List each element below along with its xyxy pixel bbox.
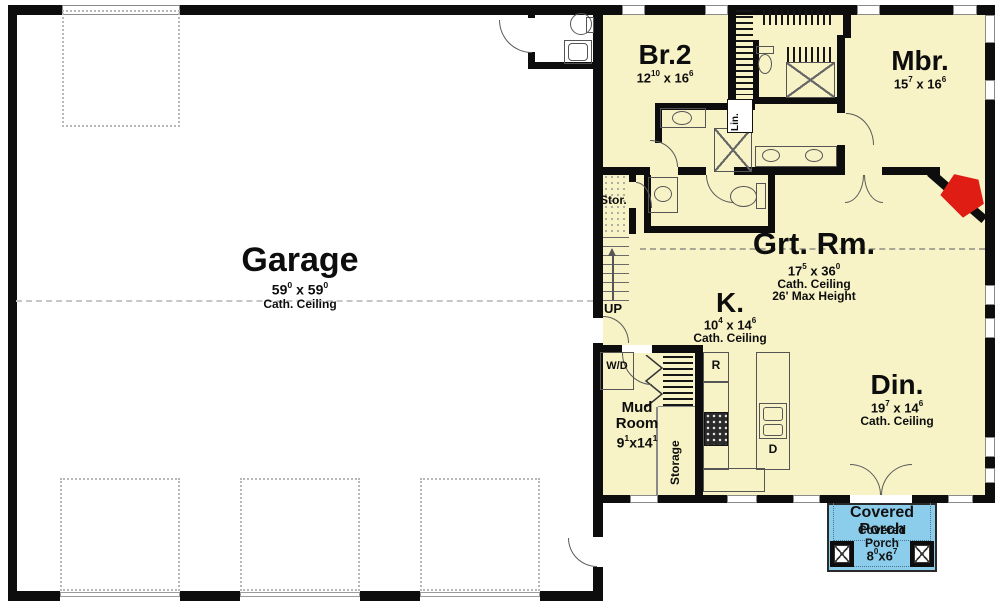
window [793,495,820,503]
dim-h-sup: 0 [836,262,840,271]
garage-door-track [240,478,360,591]
kitchen-counter [703,468,765,492]
shower [714,128,752,172]
window [985,437,995,457]
wall [728,8,736,103]
dim-h-sup: 6 [942,75,946,84]
closet-rod-hatch [763,10,833,25]
dim-w-sup: 4 [718,316,722,325]
cooktop [704,412,728,446]
wall [695,353,703,497]
dim-w: 8 [867,549,874,564]
window [985,318,995,338]
dim-w: 59 [272,281,288,297]
room-dimensions: 91x141 [597,435,677,450]
dim-sep: x [660,71,674,86]
stair-direction-arrow [612,254,614,300]
room-dimensions: 590 x 590 [180,282,420,297]
garage-label: Garage 590 x 590 Cath. Ceiling [180,243,420,311]
window [985,15,995,43]
closet-rod-hatch [663,356,693,406]
dishwasher-label: D [756,443,790,456]
wall [678,167,706,175]
dim-sep: x [629,434,637,450]
sink [654,186,672,202]
room-name: Grt. Rm. [724,228,904,261]
ceiling-dashed-outline [62,10,180,127]
door-arc [568,538,597,567]
porch-dimensions: 80x67 [827,549,937,563]
linen-closet-label: Lin. [731,101,742,131]
dim-w-sup: 5 [802,262,806,271]
dim-h-sup: 7 [893,547,897,556]
dim-h-sup: 6 [689,69,693,78]
garage-door-panel [420,592,540,597]
stair-arrow-head [608,248,616,256]
toilet-tank [756,183,766,209]
window [985,80,995,100]
door-arc [499,20,532,53]
room-name: Garage [180,243,420,279]
dim-sep: x [878,549,885,564]
room-dimensions: 157 x 166 [860,77,980,91]
mud-room-label: Mud Room 91x141 [597,400,677,450]
dim-h: 59 [308,281,324,297]
window [985,285,995,305]
dim-h: 36 [821,263,835,278]
window [948,495,973,503]
window [630,495,658,503]
dim-w-sup: 0 [287,280,292,290]
dim-w-sup: 1 [624,433,629,443]
toilet-tank [756,46,774,54]
washer-dryer-label: W/D [601,361,633,373]
room-name: Din. [837,370,957,399]
sink-basin [763,424,783,436]
window [705,5,728,15]
garage-door-panel [240,592,360,597]
room-dimensions: 175 x 360 [724,264,904,278]
closet-rod-hatch [736,10,753,95]
dim-w-sup: 7 [885,399,889,408]
dim-h: 16 [927,77,941,92]
floor-plan: Lin. W/D Storage R D Garage 590 x 590 Ca… [0,0,1000,601]
porch-label-small: Covered Porch 80x67 [827,524,937,563]
dim-h: 14 [637,434,653,450]
wall [837,35,845,113]
window [727,495,757,503]
room-name: K. [680,288,780,317]
refrigerator-label: R [703,359,729,372]
garage-door-track [420,478,540,591]
wall [753,97,843,104]
sink [672,111,692,125]
dim-h: 6 [886,549,893,564]
mbr-label: Mbr. 157 x 166 [860,46,980,91]
dim-sep: x [913,77,927,92]
garage-door-panel [60,592,180,597]
wall [8,5,17,601]
dining-label: Din. 197 x 146 Cath. Ceiling [837,370,957,428]
wall [629,208,636,234]
closet-rod-hatch [787,47,835,62]
room-dimensions: 104 x 146 [680,318,780,332]
sink [805,149,823,162]
wall [843,8,851,38]
window [622,5,645,15]
br2-label: Br.2 1210 x 166 [605,40,725,85]
wall [593,5,603,601]
window [953,5,977,15]
door-opening [593,318,603,343]
dim-w: 15 [894,77,908,92]
room-name: Mbr. [860,46,980,75]
shower [786,62,835,98]
ceiling-note: Cath. Ceiling [837,415,957,428]
up-label: UP [604,302,622,316]
ceiling-note: Cath. Ceiling [680,332,780,345]
dim-w-sup: 0 [874,547,878,556]
room-name: Room [597,416,677,432]
dim-sep: x [292,281,308,297]
stor-label: Stor. [600,194,627,207]
dim-w-sup: 10 [651,69,660,78]
room-dimensions: 197 x 146 [837,401,957,415]
sink [762,149,780,162]
dim-w: 17 [788,263,802,278]
dim-h: 16 [674,71,688,86]
wall [629,174,636,182]
toilet [758,54,772,74]
sink-basin [763,407,783,421]
dim-h-sup: 6 [919,399,923,408]
toilet [730,186,757,207]
porch-line: Covered [827,524,937,537]
dim-w: 12 [637,71,651,86]
dim-h-sup: 6 [752,316,756,325]
window [985,468,995,483]
wall [837,145,845,175]
room-name: Br.2 [605,40,725,69]
porch-line: Porch [827,537,937,550]
ceiling-note: Cath. Ceiling [180,298,420,311]
porch-line: Covered [827,505,937,522]
dim-w-sup: 7 [908,75,912,84]
window [857,5,880,15]
toilet-tank [586,17,594,33]
room-dimensions: 1210 x 166 [605,71,725,85]
room-name: Mud [597,400,677,416]
wall [768,175,775,233]
kitchen-label: K. 104 x 146 Cath. Ceiling [680,288,780,345]
dim-h-sup: 0 [323,280,328,290]
door-opening [850,495,912,503]
sink-basin [568,43,588,61]
garage-door-track [60,478,180,591]
dim-sep: x [807,263,821,278]
dim-h-sup: 1 [653,433,658,443]
stair-treads [603,237,629,305]
